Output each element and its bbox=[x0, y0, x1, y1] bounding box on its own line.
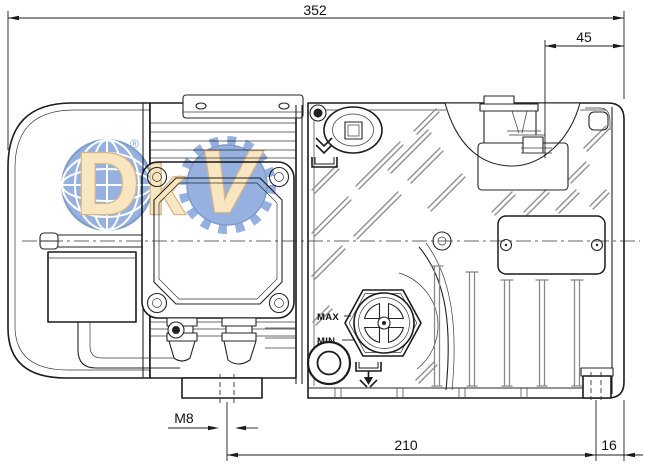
oil-fill-plug bbox=[324, 107, 382, 153]
motor-pump-flange bbox=[296, 105, 302, 384]
logo-letter-v: V bbox=[198, 132, 263, 231]
dim-foot-edge: 16 bbox=[601, 437, 635, 457]
mounting-foot-right bbox=[583, 376, 611, 398]
bracket-slot-right bbox=[279, 103, 289, 109]
technical-drawing-vacuum-pump-side-view: MAX MIN bbox=[0, 0, 645, 466]
drawing-canvas: MAX MIN bbox=[0, 0, 645, 466]
svg-text:45: 45 bbox=[576, 29, 592, 45]
logo-registered-mark: ® bbox=[130, 137, 139, 151]
dim-thread-callout: M8 bbox=[168, 410, 258, 430]
mounting-foot-left bbox=[182, 378, 262, 398]
motor-screw bbox=[168, 322, 184, 338]
svg-text:16: 16 bbox=[601, 437, 617, 453]
mounting-foot-right-cap bbox=[581, 368, 613, 376]
terminal-box bbox=[48, 252, 136, 322]
bracket-slot-left bbox=[196, 103, 206, 109]
svg-text:210: 210 bbox=[394, 437, 418, 453]
nameplate bbox=[498, 216, 605, 274]
dim-overall-length: 352 bbox=[8, 2, 624, 20]
logo-letter-k: k bbox=[146, 151, 185, 229]
svg-text:M8: M8 bbox=[174, 410, 194, 426]
motor-assembly bbox=[8, 95, 303, 384]
dim-inlet-offset: 45 bbox=[545, 29, 624, 48]
max-label: MAX bbox=[317, 312, 339, 323]
svg-text:352: 352 bbox=[303, 2, 327, 18]
dim-foot-spacing: 210 bbox=[227, 437, 643, 457]
pump-corner-screw bbox=[310, 105, 326, 121]
cable-gland-right bbox=[222, 318, 256, 364]
oil-drain-plug bbox=[308, 342, 350, 384]
